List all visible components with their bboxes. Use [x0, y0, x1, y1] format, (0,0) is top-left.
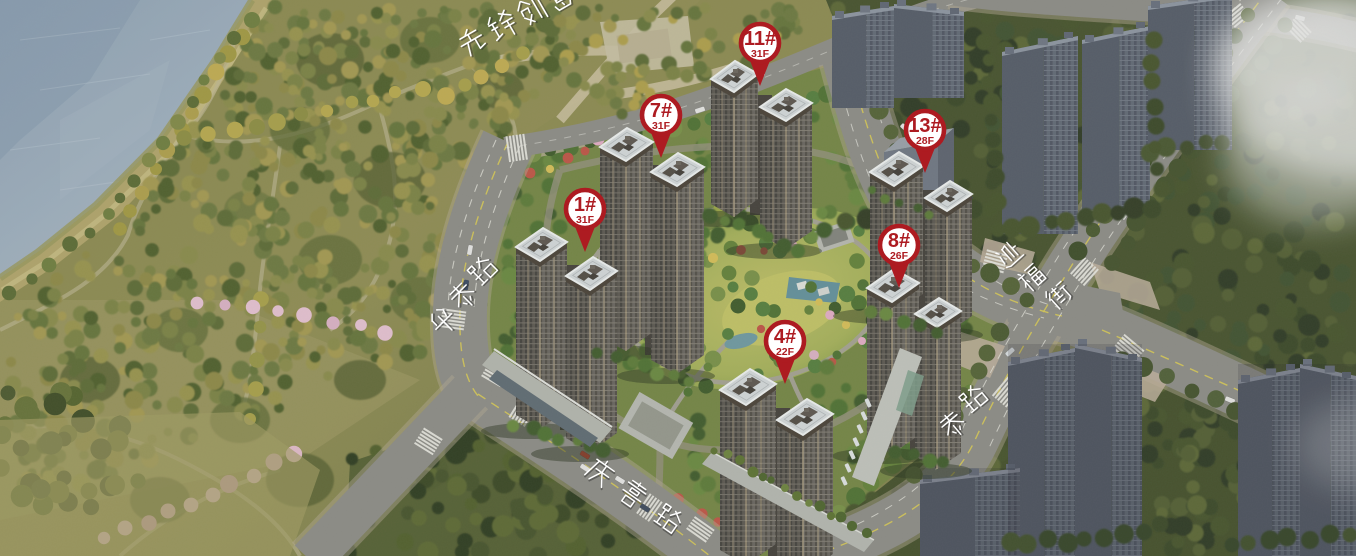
svg-text:28F: 28F — [916, 135, 935, 147]
svg-text:31F: 31F — [652, 120, 671, 132]
svg-text:31F: 31F — [751, 48, 770, 60]
svg-text:13#: 13# — [908, 115, 941, 137]
svg-text:4#: 4# — [774, 326, 796, 348]
svg-text:7#: 7# — [650, 100, 672, 122]
svg-text:31F: 31F — [576, 214, 595, 226]
svg-text:1#: 1# — [574, 194, 596, 216]
svg-text:26F: 26F — [890, 250, 909, 262]
svg-text:22F: 22F — [776, 346, 795, 358]
svg-text:11#: 11# — [744, 28, 776, 50]
svg-text:8#: 8# — [888, 230, 910, 252]
